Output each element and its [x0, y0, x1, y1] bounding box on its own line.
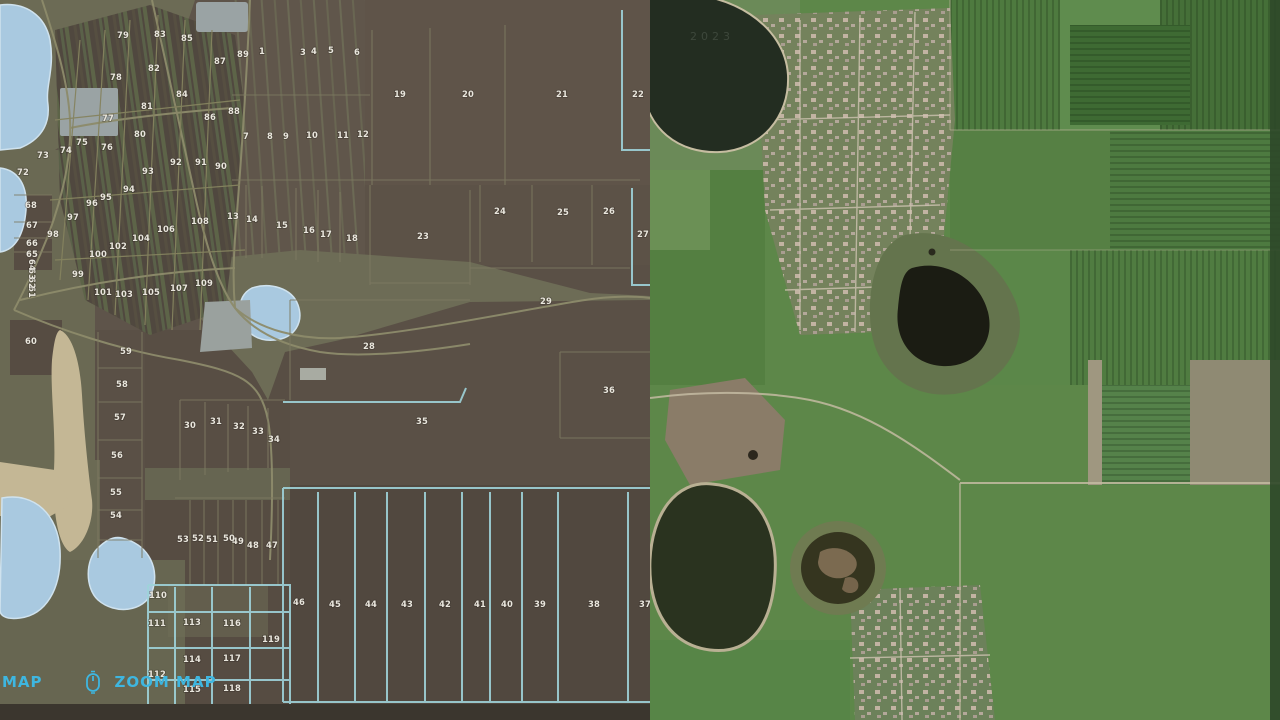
field-label-94: 94	[123, 184, 135, 194]
field-label-118: 118	[223, 683, 241, 693]
field-label-91: 91	[195, 157, 207, 167]
field-label-48: 48	[247, 540, 259, 550]
field-label-115: 115	[183, 684, 201, 694]
field-label-25: 25	[557, 207, 569, 217]
field-label-76: 76	[101, 142, 113, 152]
field-label-113: 113	[183, 617, 201, 627]
field-label-64: 64	[27, 259, 37, 271]
field-label-35: 35	[416, 416, 428, 426]
field-label-105: 105	[142, 287, 160, 297]
field-label-28: 28	[363, 341, 375, 351]
satellite-canvas	[650, 0, 1280, 720]
field-label-86: 86	[204, 112, 216, 122]
field-label-40: 40	[501, 599, 513, 609]
satellite-panel: 2023	[650, 0, 1280, 720]
field-label-65: 65	[26, 249, 38, 259]
field-label-34: 34	[268, 434, 280, 444]
field-label-80: 80	[134, 129, 146, 139]
field-label-82: 82	[148, 63, 160, 73]
field-label-83: 83	[154, 29, 166, 39]
field-label-9: 9	[283, 131, 289, 141]
field-label-15: 15	[276, 220, 288, 230]
field-label-47: 47	[266, 540, 278, 550]
field-label-107: 107	[170, 283, 188, 293]
field-label-56: 56	[111, 450, 123, 460]
field-label-13: 13	[227, 211, 239, 221]
field-label-90: 90	[215, 161, 227, 171]
field-label-58: 58	[116, 379, 128, 389]
field-label-4: 4	[311, 46, 317, 56]
field-label-116: 116	[223, 618, 241, 628]
field-label-52: 52	[192, 533, 204, 543]
field-label-60: 60	[25, 336, 37, 346]
field-label-20: 20	[462, 89, 474, 99]
field-label-27: 27	[637, 229, 649, 239]
field-label-42: 42	[439, 599, 451, 609]
field-label-38: 38	[588, 599, 600, 609]
field-label-23: 23	[417, 231, 429, 241]
imagery-watermark: 2023	[690, 30, 734, 43]
pda-map-canvas[interactable]: 1345678910111213141516171819202122232425…	[0, 0, 650, 720]
field-label-100: 100	[89, 249, 107, 259]
field-label-57: 57	[114, 412, 126, 422]
field-label-7: 7	[243, 131, 249, 141]
field-label-89: 89	[237, 49, 249, 59]
field-label-50: 50	[223, 533, 235, 543]
field-label-96: 96	[86, 198, 98, 208]
field-label-39: 39	[534, 599, 546, 609]
field-label-75: 75	[76, 137, 88, 147]
field-label-85: 85	[181, 33, 193, 43]
field-label-119: 119	[262, 634, 280, 644]
field-label-21: 21	[556, 89, 568, 99]
field-label-1: 1	[259, 46, 265, 56]
field-label-73: 73	[37, 150, 49, 160]
field-label-109: 109	[195, 278, 213, 288]
field-label-54: 54	[110, 510, 122, 520]
field-label-8: 8	[267, 131, 273, 141]
field-label-104: 104	[132, 233, 150, 243]
field-label-112: 112	[148, 669, 166, 679]
satellite-forest-edge	[1270, 0, 1280, 720]
satellite-village-south	[850, 585, 995, 720]
field-label-11: 11	[337, 130, 349, 140]
field-label-29: 29	[540, 296, 552, 306]
field-label-87: 87	[214, 56, 226, 66]
field-label-98: 98	[47, 229, 59, 239]
field-label-32: 32	[233, 421, 245, 431]
field-label-103: 103	[115, 289, 133, 299]
field-label-114: 114	[183, 654, 201, 664]
field-label-37: 37	[639, 599, 650, 609]
map-comparison-screenshot: 1345678910111213141516171819202122232425…	[0, 0, 1280, 720]
field-label-41: 41	[474, 599, 486, 609]
field-label-14: 14	[246, 214, 258, 224]
field-label-81: 81	[141, 101, 153, 111]
field-label-51: 51	[206, 534, 218, 544]
field-label-55: 55	[110, 487, 122, 497]
field-label-111: 111	[148, 618, 166, 628]
field-label-84: 84	[176, 89, 188, 99]
field-label-10: 10	[306, 130, 318, 140]
field-label-97: 97	[67, 212, 79, 222]
field-label-101: 101	[94, 287, 112, 297]
field-label-30: 30	[184, 420, 196, 430]
field-label-22: 22	[632, 89, 644, 99]
field-label-12: 12	[357, 129, 369, 139]
field-label-108: 108	[191, 216, 209, 226]
pda-map-panel[interactable]: 1345678910111213141516171819202122232425…	[0, 0, 650, 720]
field-label-18: 18	[346, 233, 358, 243]
field-label-95: 95	[100, 192, 112, 202]
field-label-19: 19	[394, 89, 406, 99]
field-label-66: 66	[26, 238, 38, 248]
field-label-74: 74	[60, 145, 72, 155]
field-label-6: 6	[354, 47, 360, 57]
field-label-16: 16	[303, 225, 315, 235]
field-label-45: 45	[329, 599, 341, 609]
field-label-110: 110	[149, 590, 167, 600]
field-label-24: 24	[494, 206, 506, 216]
field-label-88: 88	[228, 106, 240, 116]
field-label-79: 79	[117, 30, 129, 40]
field-label-102: 102	[109, 241, 127, 251]
field-label-77: 77	[102, 113, 114, 123]
field-label-26: 26	[603, 206, 615, 216]
field-label-5: 5	[328, 45, 334, 55]
field-label-3: 3	[300, 47, 306, 57]
field-label-72: 72	[17, 167, 29, 177]
field-label-31: 31	[210, 416, 222, 426]
field-label-53: 53	[177, 534, 189, 544]
field-label-46: 46	[293, 597, 305, 607]
field-label-59: 59	[120, 346, 132, 356]
field-label-93: 93	[142, 166, 154, 176]
field-label-99: 99	[72, 269, 84, 279]
field-label-78: 78	[110, 72, 122, 82]
field-label-106: 106	[157, 224, 175, 234]
field-label-67: 67	[26, 220, 38, 230]
map-bottom-band	[0, 704, 650, 720]
field-label-43: 43	[401, 599, 413, 609]
field-label-68: 68	[25, 200, 37, 210]
field-label-17: 17	[320, 229, 332, 239]
field-label-117: 117	[223, 653, 241, 663]
field-label-36: 36	[603, 385, 615, 395]
field-label-33: 33	[252, 426, 264, 436]
field-label-44: 44	[365, 599, 377, 609]
field-label-92: 92	[170, 157, 182, 167]
